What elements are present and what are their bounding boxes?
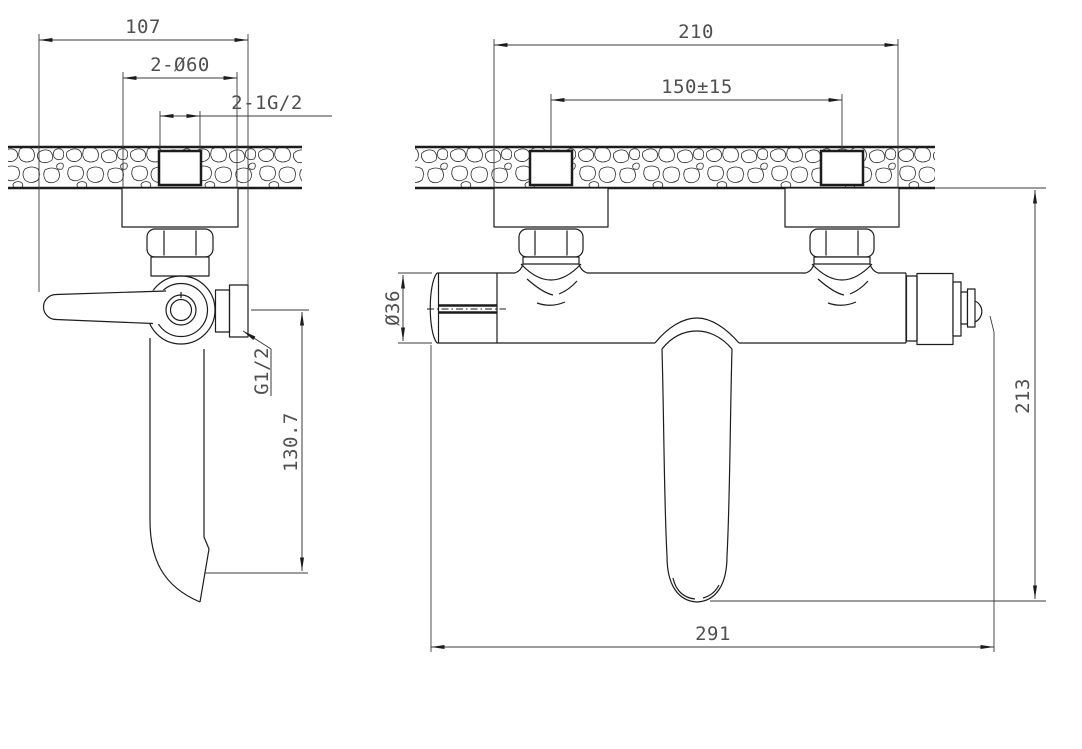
hex-nut [810, 229, 874, 257]
drawing-canvas: 107 2-Ø60 2-1G/2 G1/2 130.7 [0, 0, 1082, 749]
union-flange [814, 257, 870, 264]
valve-neck-side [151, 257, 209, 276]
dim-spout-drop-label: 130.7 [280, 412, 302, 472]
dim-210-label: 210 [678, 21, 714, 43]
knurled-knob [917, 274, 953, 345]
dim-107-label: 107 [125, 16, 161, 38]
wall-anchor-block-right [821, 151, 863, 185]
front-view-dimensions: 210 150±15 Ø36 213 291 [382, 21, 1046, 652]
diverter-outlet [907, 274, 982, 345]
escutcheon [494, 188, 608, 227]
body-left-cap-curve [430, 273, 437, 343]
wall-section-side [8, 147, 302, 188]
front-view [415, 147, 982, 602]
outlet-stub-side [216, 290, 230, 332]
connector-right [785, 188, 899, 305]
dim-291-label: 291 [695, 623, 731, 645]
spout-side [150, 338, 209, 602]
wall-section-front [415, 147, 935, 188]
wall-anchor-block-left [530, 151, 572, 185]
spout-front [655, 318, 739, 602]
lever-handle-fill [43, 290, 170, 324]
faucet-installation-drawing: 107 2-Ø60 2-1G/2 G1/2 130.7 [0, 0, 1082, 749]
connector-left [494, 188, 608, 305]
dim-150-label: 150±15 [661, 76, 733, 98]
mixer-body [427, 273, 906, 343]
hose-nipple-dome [975, 301, 982, 322]
outlet-thread-ring [230, 285, 249, 337]
wall-hatch [8, 147, 302, 188]
transition-arc [812, 264, 872, 280]
valve-hub [43, 276, 215, 344]
dim-wall-thread-label: 2-1G/2 [231, 92, 303, 114]
dim-escutcheon-label: 2-Ø60 [150, 54, 210, 76]
dim-213-label: 213 [1012, 378, 1034, 414]
dim-outlet-thread-label: G1/2 [251, 347, 273, 395]
escutcheon-side [122, 188, 238, 227]
wall-anchor-block [159, 151, 201, 185]
hex-nut [519, 229, 583, 257]
outlet-collar [907, 276, 918, 341]
union-flange [523, 257, 579, 264]
dim-body-dia-label: Ø36 [382, 290, 404, 326]
hex-nut-side [147, 229, 213, 257]
transition-arc [521, 264, 581, 280]
escutcheon [785, 188, 899, 227]
